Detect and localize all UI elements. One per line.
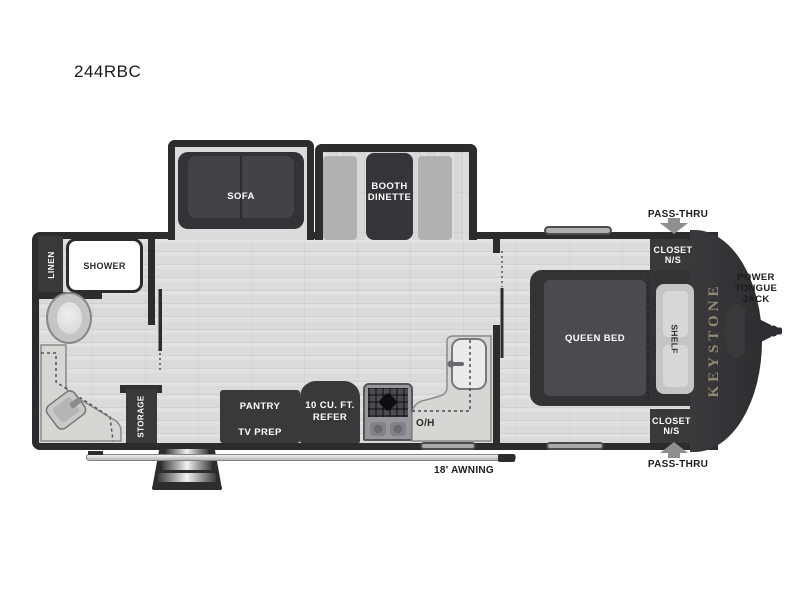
brand-logo-text: KEYSTONE — [706, 282, 723, 397]
bedroom-door — [501, 288, 504, 358]
floorplan-canvas: 244RBC SOFA BOOTH DINETTE QUEEN BED SHEL… — [0, 0, 800, 600]
power-tongue-jack-line3: JACK — [720, 294, 792, 305]
bathroom-door — [159, 289, 163, 351]
awning-bar — [86, 454, 516, 461]
entry-steps — [152, 445, 222, 490]
awning-end-left — [88, 451, 103, 455]
tongue-jack — [724, 304, 782, 358]
awning-end-right — [498, 454, 515, 462]
pass-thru-curbside-label: PASS-THRU — [640, 459, 716, 470]
power-tongue-jack-label: POWER TONGUE JACK — [720, 272, 792, 305]
pass-thru-arrow-down-icon — [660, 218, 688, 234]
power-tongue-jack-line1: POWER — [720, 272, 792, 283]
pass-thru-roadside-label: PASS-THRU — [640, 209, 716, 220]
detail-overlay — [0, 0, 800, 600]
brand-logo: KEYSTONE — [705, 260, 723, 420]
overhead-label: O/H — [416, 418, 435, 429]
kitchen-faucet-spout — [451, 362, 464, 366]
corner-counter — [41, 345, 121, 441]
pass-thru-arrow-up-icon — [660, 442, 688, 458]
power-tongue-jack-line2: TONGUE — [720, 283, 792, 294]
awning-label: 18' AWNING — [426, 465, 502, 476]
